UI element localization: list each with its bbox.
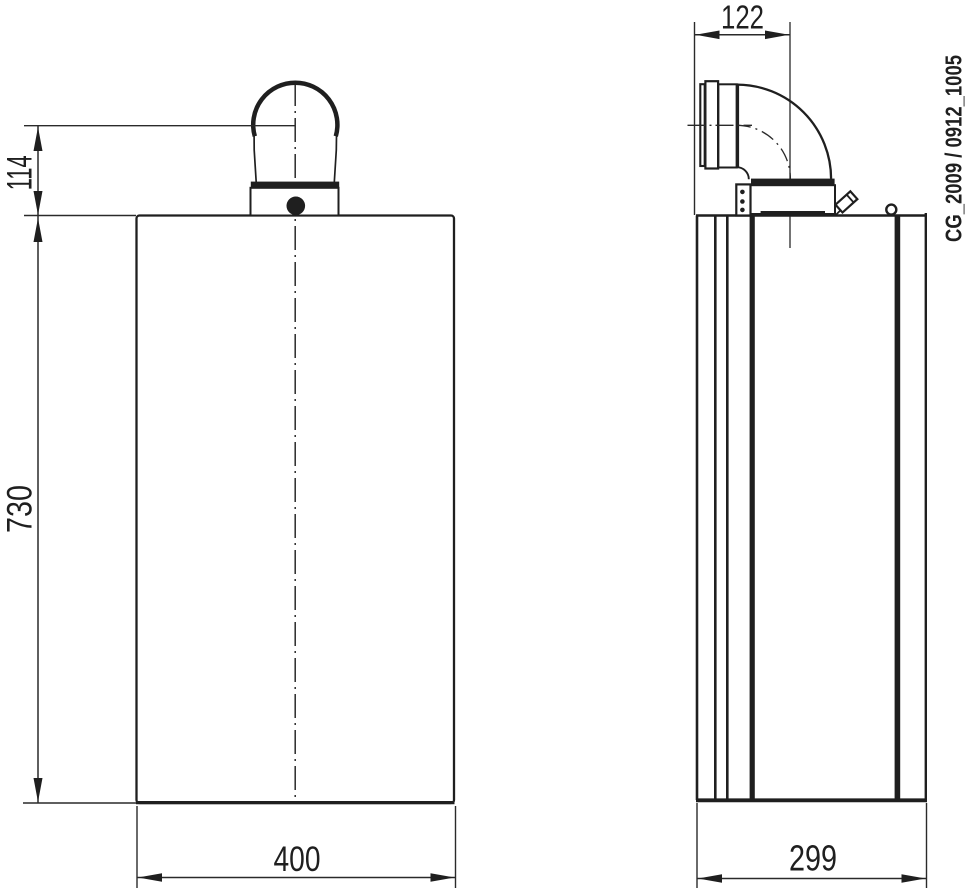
svg-text:299: 299 (789, 838, 837, 879)
svg-text:400: 400 (274, 840, 321, 879)
svg-text:122: 122 (721, 0, 764, 36)
svg-text:114: 114 (1, 155, 40, 190)
svg-text:730: 730 (1, 485, 40, 533)
svg-text:CG_2009 / 0912_1005: CG_2009 / 0912_1005 (941, 55, 966, 242)
